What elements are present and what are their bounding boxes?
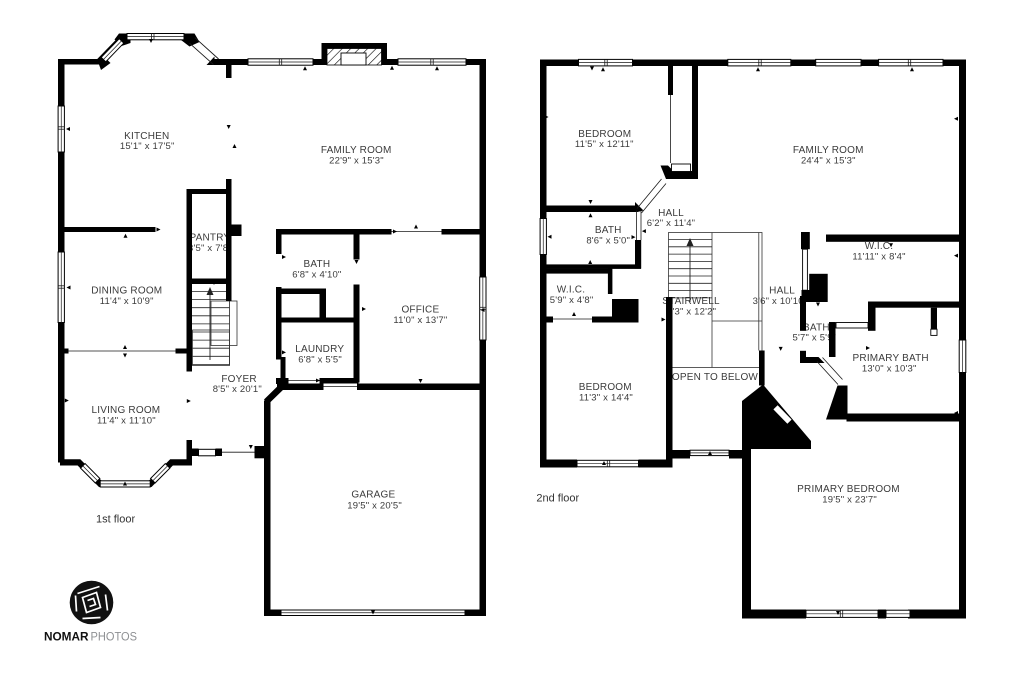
svg-text:5'9" x 4'8": 5'9" x 4'8" [550, 295, 594, 306]
svg-text:4'3" x 12'2": 4'3" x 12'2" [667, 307, 716, 318]
svg-text:OPEN TO BELOW: OPEN TO BELOW [672, 372, 759, 383]
svg-text:19'5" x 20'5": 19'5" x 20'5" [347, 501, 402, 512]
svg-text:13'0" x 10'3": 13'0" x 10'3" [862, 364, 917, 375]
svg-text:2nd floor: 2nd floor [536, 492, 579, 504]
svg-text:DINING ROOM: DINING ROOM [91, 286, 162, 297]
svg-text:6'8" x 4'10": 6'8" x 4'10" [292, 270, 341, 281]
svg-text:11'4" x 10'9": 11'4" x 10'9" [100, 296, 154, 307]
svg-text:24'4" x 15'3": 24'4" x 15'3" [801, 156, 856, 167]
svg-text:W.I.C.: W.I.C. [865, 241, 893, 252]
svg-text:OFFICE: OFFICE [401, 305, 439, 316]
svg-text:6'8" x 5'5": 6'8" x 5'5" [298, 355, 342, 366]
svg-text:11'11" x 8'4": 11'11" x 8'4" [852, 252, 905, 263]
svg-text:15'1" x 17'5": 15'1" x 17'5" [120, 141, 175, 152]
svg-text:11'4" x 11'10": 11'4" x 11'10" [97, 416, 156, 427]
svg-text:NOMAR: NOMAR [44, 630, 89, 644]
svg-text:HALL: HALL [769, 285, 795, 296]
svg-text:6'2" x 11'4": 6'2" x 11'4" [647, 218, 696, 229]
svg-text:3'6" x 10'10": 3'6" x 10'10" [753, 296, 808, 307]
svg-text:8'6" x 5'0": 8'6" x 5'0" [586, 236, 630, 247]
svg-text:GARAGE: GARAGE [351, 490, 395, 501]
svg-text:3'5" x 7'8": 3'5" x 7'8" [188, 243, 232, 254]
svg-text:8'5" x 20'1": 8'5" x 20'1" [213, 384, 262, 395]
svg-text:11'3" x 14'4": 11'3" x 14'4" [579, 393, 633, 404]
svg-text:11'0" x 13'7": 11'0" x 13'7" [393, 315, 447, 326]
svg-text:LIVING ROOM: LIVING ROOM [91, 405, 160, 416]
svg-text:11'5" x 12'11": 11'5" x 12'11" [575, 139, 634, 150]
svg-text:1st floor: 1st floor [96, 514, 135, 526]
svg-text:PHOTOS: PHOTOS [91, 630, 138, 644]
svg-text:19'5" x 23'7": 19'5" x 23'7" [822, 495, 877, 506]
svg-text:22'9" x 15'3": 22'9" x 15'3" [329, 156, 384, 167]
